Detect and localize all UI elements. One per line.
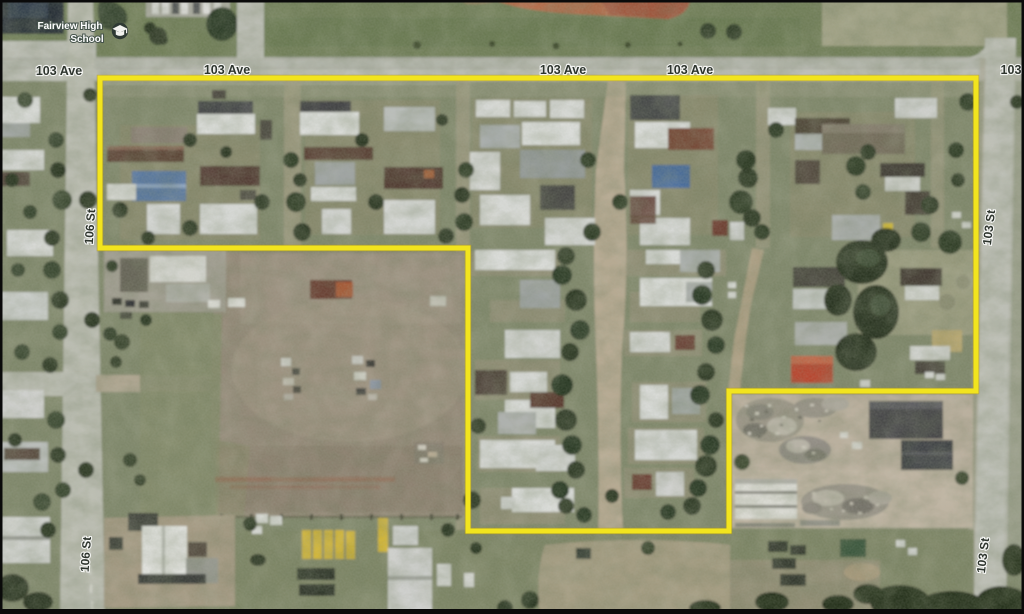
svg-text:103 Ave: 103 Ave bbox=[36, 64, 82, 78]
svg-text:103 Ave: 103 Ave bbox=[540, 63, 586, 77]
svg-text:103 A: 103 A bbox=[1001, 63, 1024, 77]
svg-text:School: School bbox=[70, 34, 104, 45]
svg-text:Fairview High: Fairview High bbox=[37, 21, 102, 32]
svg-text:106 St: 106 St bbox=[78, 536, 94, 572]
svg-text:103 Ave: 103 Ave bbox=[204, 63, 250, 77]
svg-text:106 St: 106 St bbox=[82, 209, 98, 245]
svg-text:103 Ave: 103 Ave bbox=[667, 63, 713, 77]
